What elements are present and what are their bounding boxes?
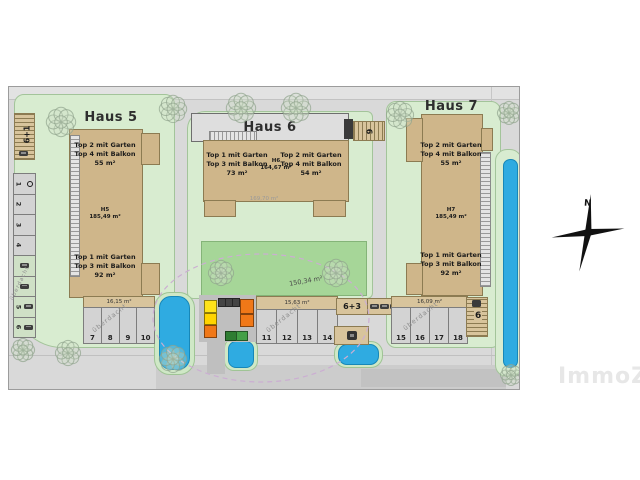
play-equipment-orange — [240, 299, 254, 314]
parking-spot: 1 — [14, 174, 35, 195]
parking-spot: 6 — [14, 318, 35, 338]
carport-haus6-label: 6 — [364, 128, 373, 134]
carport-sign-haus7: 6 — [466, 297, 488, 337]
parking-spot: 17 — [429, 308, 448, 343]
parking-spot: 3 — [14, 215, 35, 236]
car-icon — [380, 304, 389, 309]
wheelchair-icon — [27, 181, 33, 187]
car-icon — [24, 304, 33, 309]
waste-bin-icon — [347, 331, 357, 340]
road-edge-bottom — [9, 355, 519, 356]
pond-east-small-water — [338, 344, 379, 365]
parking-spot: 13 — [297, 310, 317, 343]
building-haus6-leg-left — [204, 200, 236, 217]
sign-center-label: 6+3 — [343, 302, 361, 311]
haus5-title: Haus 5 — [66, 110, 156, 125]
parking-spot: 10 — [136, 308, 154, 343]
pond-west-water — [159, 296, 190, 370]
play-equipment-orange — [204, 325, 217, 338]
tree-icon — [11, 338, 34, 361]
play-equipment-yellow — [204, 313, 217, 325]
carport-sign-west-label: 6+1 — [22, 126, 31, 144]
pool-east-water — [503, 159, 518, 368]
compass-north-label: N — [584, 199, 592, 210]
sign-center: 6+3 — [336, 298, 368, 315]
parking-spot: 2 — [14, 195, 35, 216]
car-icon — [370, 304, 379, 309]
site-plan-image: Haus 6 6 1 2 3 4 — [0, 0, 640, 480]
haus6-roof-area: 169,70 m² — [229, 196, 299, 202]
haus5-unit-bottom: Top 1 mit GartenTop 3 mit Balkon92 m² — [71, 253, 139, 280]
parking-spot: 18 — [448, 308, 467, 343]
waste-container-icon — [232, 298, 240, 307]
compass-icon: N — [548, 188, 628, 278]
waste-shelter — [334, 326, 369, 345]
sidewalk-bottom-dark — [361, 369, 506, 387]
haus7-title: Haus 7 — [404, 99, 499, 114]
haus5-house-label: H5185,49 m² — [71, 207, 139, 221]
carport-sign-west: 6+1 — [14, 113, 35, 160]
haus7-unit-top: Top 2 mit GartenTop 4 mit Balkon55 m² — [413, 141, 489, 168]
building-haus5-wing-bottom — [141, 263, 160, 295]
play-equipment-yellow — [204, 300, 217, 313]
haus5-unit-top: Top 2 mit GartenTop 4 mit Balkon55 m² — [71, 141, 139, 168]
site-plan: Haus 6 6 1 2 3 4 — [8, 86, 520, 390]
carport-haus6-post — [344, 119, 353, 139]
play-equipment-green — [236, 331, 248, 341]
car-icon — [24, 325, 33, 330]
garden-haus6 — [201, 241, 367, 296]
play-equipment-orange — [240, 314, 254, 327]
playground-path — [207, 342, 225, 374]
parking-spot: 4 — [14, 236, 35, 257]
building-haus6-leg-right — [313, 200, 346, 217]
parking-lot-west: 1 2 3 4 5 6 — [13, 173, 36, 338]
building-haus5-wing-top — [141, 133, 160, 165]
pond-center-water — [228, 341, 254, 368]
watermark: ImmoZ — [558, 364, 640, 389]
carport-haus6: 6 — [353, 121, 385, 141]
parking-spot: 5 — [14, 297, 35, 318]
haus7-house-label: H7185,49 m² — [413, 207, 489, 221]
car-icon — [472, 300, 481, 307]
haus6-unit-right: Top 2 mit GartenTop 4 mit Balkon54 m² — [279, 151, 343, 178]
car-icon — [19, 151, 28, 156]
haus7-unit-bottom: Top 1 mit GartenTop 3 mit Balkon92 m² — [413, 251, 489, 278]
carport-sign-haus7-label: 6 — [474, 311, 482, 321]
